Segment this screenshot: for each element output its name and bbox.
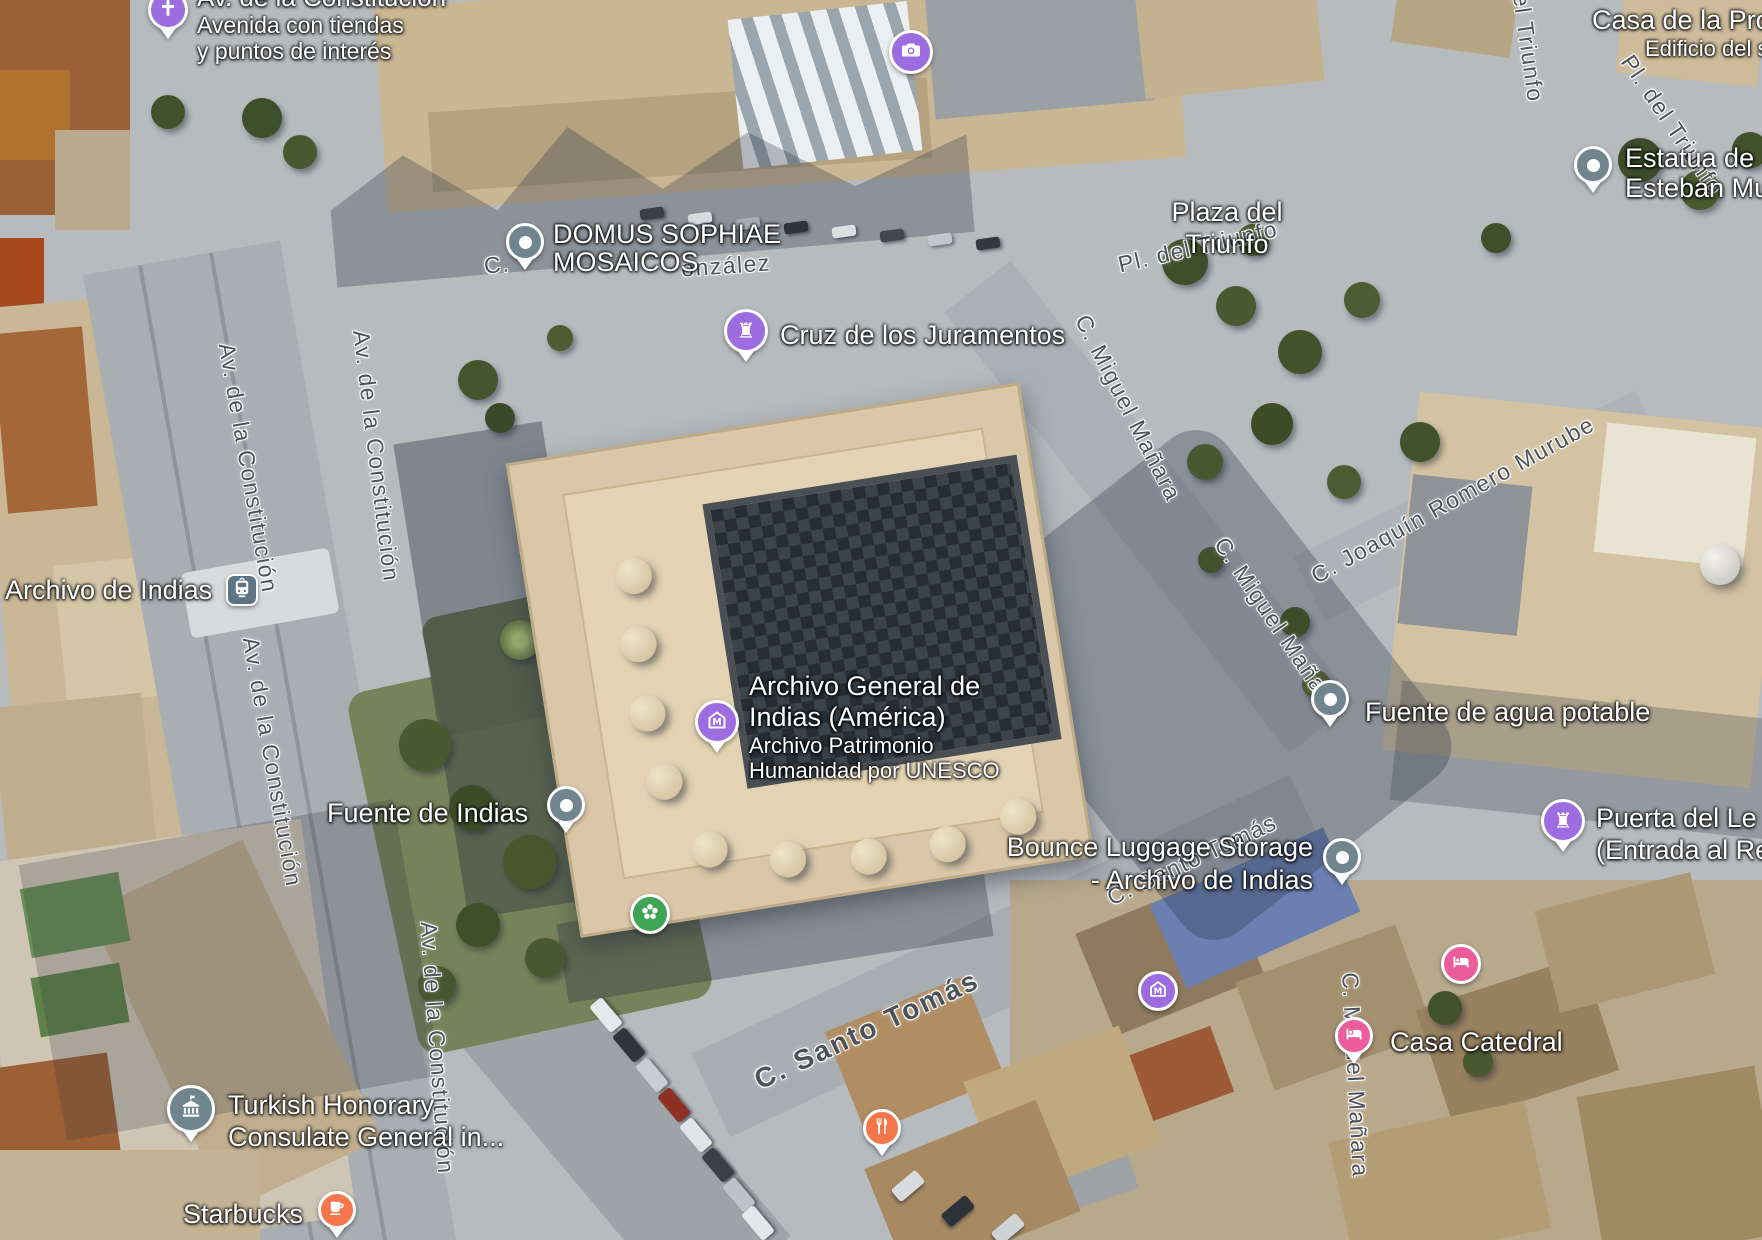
poi-title-line: Esteban Mur — [1625, 173, 1762, 203]
building-shape — [55, 130, 130, 230]
poi-title-line: Turkish Honorary — [228, 1089, 504, 1121]
tree — [1481, 223, 1511, 253]
casa-catedral-pin[interactable] — [1335, 1017, 1373, 1055]
archivo-general-badge[interactable]: M — [695, 700, 739, 744]
tree — [283, 135, 317, 169]
area-label-plaza-triunfo[interactable]: Plaza del Triunfo — [1171, 196, 1282, 260]
poi-title-line: Casa de la Pro — [1592, 4, 1762, 36]
museum-badge[interactable]: M — [1138, 971, 1178, 1011]
tree — [458, 360, 498, 400]
hotel-bed-icon — [1344, 1024, 1364, 1049]
photo-spot-badge[interactable] — [889, 30, 933, 74]
poi-title-line: (Entrada al Re — [1596, 834, 1762, 866]
area-label-line: Plaza del — [1171, 196, 1282, 228]
museum-icon: M — [1147, 978, 1169, 1005]
tram-icon — [230, 576, 254, 605]
courtyard-shape — [1594, 423, 1757, 568]
car — [879, 228, 904, 242]
cruz-juramentos-badge[interactable]: ♜ — [724, 309, 768, 353]
poi-title-line: Indias (América) — [749, 702, 1000, 733]
poi-title-line: MOSAICOS — [553, 248, 781, 276]
estatua-pin[interactable] — [1574, 146, 1612, 184]
tree — [1400, 422, 1440, 462]
map-canvas[interactable]: Av. de la Constitución Av. de la Constit… — [0, 0, 1762, 1240]
building-shape — [0, 326, 98, 513]
car — [927, 232, 952, 246]
building-shape — [1135, 0, 1324, 99]
turkish-consulate-pin[interactable] — [167, 1085, 215, 1133]
poi-title-line: DOMUS SOPHIAE — [553, 220, 781, 248]
tram-stop-icon[interactable] — [226, 574, 258, 606]
car — [975, 236, 1000, 250]
tree — [151, 95, 185, 129]
bounce-pin[interactable] — [1323, 838, 1361, 876]
poi-label-fuente-agua[interactable]: Fuente de agua potable — [1365, 696, 1650, 728]
building-shape — [1391, 0, 1520, 58]
poi-title-line: Bounce Luggage Storage — [1007, 831, 1313, 864]
restaurant-pin[interactable] — [863, 1109, 901, 1147]
tree — [547, 325, 573, 351]
poi-label-domus[interactable]: DOMUS SOPHIAE MOSAICOS — [553, 220, 781, 276]
poi-subtitle: Humanidad por UNESCO — [749, 758, 1000, 783]
poi-label-estatua[interactable]: Estatua de Esteban Mur — [1625, 143, 1762, 203]
coffee-cup-icon — [327, 1198, 347, 1223]
poi-subtitle: Edificio del s — [1645, 36, 1762, 61]
hotel-bed-icon — [1451, 952, 1471, 977]
monument-rook-icon: ♜ — [1554, 811, 1573, 832]
tree — [456, 903, 500, 947]
svg-text:M: M — [1154, 986, 1163, 996]
svg-text:M: M — [712, 717, 721, 728]
park-flower-badge[interactable] — [630, 894, 670, 934]
poi-label-fuente-indias[interactable]: Fuente de Indias — [327, 797, 528, 829]
poi-title-line: - Archivo de Indias — [1007, 864, 1313, 897]
flower-icon — [639, 901, 661, 928]
poi-label-casa-catedral[interactable]: Casa Catedral — [1390, 1026, 1563, 1058]
area-label-line: Triunfo — [1171, 228, 1282, 260]
poi-title: Av. de la Constitución — [197, 0, 446, 12]
tree — [1251, 403, 1293, 445]
poi-subtitle: Archivo Patrimonio — [749, 733, 1000, 758]
tree — [485, 403, 515, 433]
poi-title-line: Estatua de — [1625, 143, 1762, 173]
shopping-street-pin[interactable] — [148, 0, 188, 30]
puerta-leon-badge[interactable]: ♜ — [1541, 799, 1585, 843]
poi-label-archivo-general[interactable]: Archivo General de Indias (América) Arch… — [749, 671, 1000, 783]
poi-label-casa-provincia[interactable]: Casa de la Pro Edificio del s — [1592, 4, 1762, 61]
poi-title-line: Consulate General in... — [228, 1121, 504, 1153]
poi-label-bounce[interactable]: Bounce Luggage Storage - Archivo de Indi… — [1007, 831, 1313, 897]
street-label-el-triunfo: el Triunfo — [1507, 0, 1549, 104]
poi-subtitle: Avenida con tiendas — [197, 12, 446, 38]
tree — [399, 719, 451, 771]
poi-label-turkish-consulate[interactable]: Turkish Honorary Consulate General in... — [228, 1089, 504, 1153]
tree — [1428, 991, 1462, 1025]
poi-title-line: Archivo General de — [749, 671, 1000, 702]
tree — [1216, 286, 1256, 326]
starbucks-pin[interactable] — [318, 1191, 356, 1229]
poi-title-line: Puerta del Le — [1596, 802, 1762, 834]
fork-knife-icon — [872, 1116, 892, 1141]
roof-shape — [925, 0, 1155, 119]
tree — [1187, 444, 1223, 480]
camera-icon — [899, 38, 923, 67]
poi-label-cruz-juramentos[interactable]: Cruz de los Juramentos — [780, 319, 1065, 351]
fuente-indias-pin[interactable] — [547, 786, 585, 824]
poi-label-starbucks[interactable]: Starbucks — [183, 1198, 303, 1230]
tree — [1278, 330, 1322, 374]
poi-label-tram-stop[interactable]: Archivo de Indias — [5, 574, 212, 606]
hotel-badge[interactable] — [1441, 944, 1481, 984]
poi-label-avenida-shopping[interactable]: Av. de la Constitución Avenida con tiend… — [197, 0, 446, 64]
tree — [242, 98, 282, 138]
museum-icon: M — [705, 708, 729, 737]
street-label-fragment-c: C. — [483, 250, 511, 279]
dome-shape — [1700, 545, 1740, 585]
tree — [1327, 465, 1361, 499]
tree — [525, 938, 565, 978]
domus-pin[interactable] — [506, 223, 544, 261]
government-building-icon — [178, 1094, 204, 1125]
monument-rook-icon: ♜ — [737, 321, 756, 342]
poi-subtitle: y puntos de interés — [197, 38, 446, 64]
poi-label-puerta-leon[interactable]: Puerta del Le (Entrada al Re — [1596, 802, 1762, 866]
fuente-agua-pin[interactable] — [1311, 680, 1349, 718]
roof-shape — [1577, 1066, 1762, 1240]
tree — [503, 835, 557, 889]
tree — [1344, 282, 1380, 318]
shopping-cross-icon — [157, 0, 179, 24]
